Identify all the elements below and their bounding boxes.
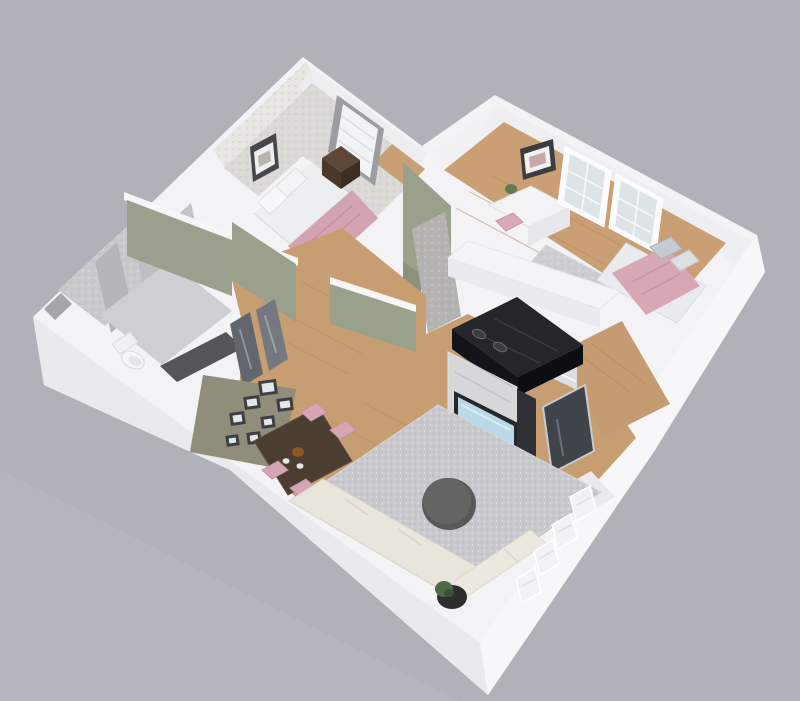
gallery-frame-2-art bbox=[280, 400, 291, 408]
scene-root bbox=[0, 0, 800, 701]
gallery-frame-4-art bbox=[264, 418, 273, 425]
dining-teapot bbox=[292, 447, 304, 457]
dining-cup-2 bbox=[297, 463, 304, 469]
gallery-frame-5-art bbox=[233, 414, 243, 422]
gallery-frame-7-art bbox=[229, 438, 237, 444]
coffee-table-top bbox=[423, 478, 471, 524]
gallery-frame-3-art bbox=[247, 398, 258, 406]
floor-plan-canvas bbox=[0, 0, 800, 701]
dining-cup-1 bbox=[283, 458, 290, 464]
apartment-3d-floor-plan-render bbox=[0, 0, 800, 701]
media-niche-dark bbox=[517, 389, 536, 458]
living-plant-dark bbox=[444, 589, 454, 597]
kids-plant bbox=[505, 184, 517, 194]
gallery-frame-1-art bbox=[261, 382, 274, 393]
